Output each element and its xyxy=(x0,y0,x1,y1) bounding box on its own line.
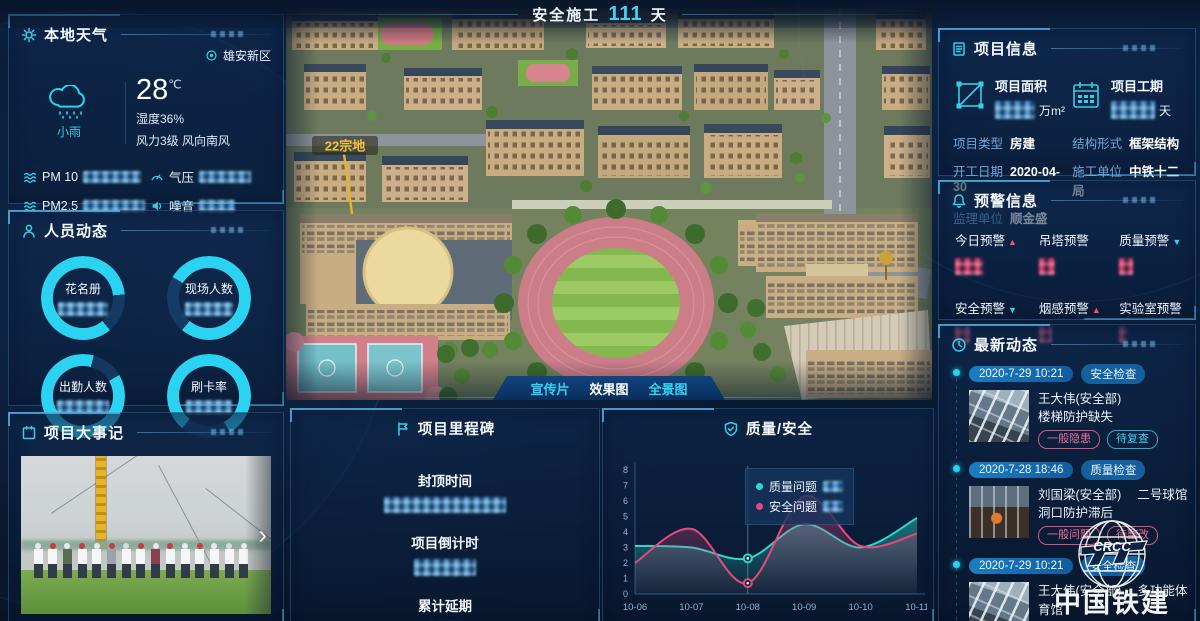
svg-text:3: 3 xyxy=(623,543,628,553)
milestone-title: 项目里程碑 xyxy=(418,418,496,439)
issue-text: 洞口防护滞后 xyxy=(1038,504,1187,522)
inspector-name: 刘国梁(安全部) xyxy=(1038,488,1121,502)
stat-unit: 万m² xyxy=(1039,102,1065,119)
header-line-right xyxy=(682,14,932,15)
temperature-unit: ℃ xyxy=(168,77,181,91)
events-panel: 项目大事记 › xyxy=(8,412,284,621)
calendar-note-icon xyxy=(21,425,37,441)
top-header: 安全施工 111 天 xyxy=(0,0,1200,28)
legend-dot-quality xyxy=(756,483,763,490)
metric-value-redacted xyxy=(83,171,141,183)
clock-icon xyxy=(951,337,967,353)
weather-main: 小雨 28℃ 湿度36% 风力3级 风向南风 xyxy=(23,76,271,149)
safety-days-title: 安全施工 111 天 xyxy=(532,3,668,26)
dashboard: 安全施工 111 天 xyxy=(0,0,1200,621)
inspector-name: 王大伟(安全部) xyxy=(1038,392,1121,406)
stat-label: 项目工期 xyxy=(1111,76,1171,95)
feed-photo[interactable] xyxy=(969,486,1029,538)
tabbar-line-right xyxy=(722,397,872,398)
carousel-next-arrow[interactable]: › xyxy=(258,520,267,551)
gear-icon xyxy=(21,27,37,43)
view-tabs: 宣传片 效果图 全景图 xyxy=(493,376,725,400)
svg-text:10-09: 10-09 xyxy=(792,602,816,613)
metric-pm10: PM 10 xyxy=(23,167,146,186)
warning-crane: 吊塔预警 xyxy=(1039,230,1113,276)
ring-value-redacted xyxy=(185,302,233,316)
feed-item[interactable]: 2020-7-29 10:21 安全检查 王大伟(安全部)多功能体育馆 楼梯防护… xyxy=(953,556,1189,621)
feed-date: 2020-7-29 10:21 xyxy=(969,366,1073,382)
air-metrics: PM 10 气压 PM2.5 噪音 xyxy=(23,167,273,215)
tooltip-value-redacted xyxy=(823,481,843,492)
stat-unit: 天 xyxy=(1159,102,1171,119)
quality-safety-chart: 01234567810-0610-0710-0810-0910-1010-11 … xyxy=(603,446,933,621)
event-photo[interactable]: › xyxy=(21,456,271,614)
header-rule xyxy=(121,34,271,35)
haze-icon xyxy=(23,170,37,184)
personnel-panel: 人员动态 花名册 现场人数 出勤人数 刷卡率 xyxy=(8,210,284,406)
location-row: 雄安新区 xyxy=(205,47,271,64)
field-type: 项目类型房建 xyxy=(953,133,1068,152)
rain-cloud-icon xyxy=(46,85,92,119)
quality-safety-panel: 质量/安全 01234567810-0610-0710-0810-0910-10… xyxy=(602,408,934,621)
header-rule xyxy=(1051,48,1183,49)
safety-title-text: 安全施工 xyxy=(532,7,600,24)
ring-roster: 花名册 xyxy=(41,256,125,340)
stat-duration: 项目工期 天 xyxy=(1069,76,1185,119)
group-of-people xyxy=(34,543,249,578)
inspector-name: 王大伟(安全部) xyxy=(1038,584,1121,598)
latest-updates-panel: 最新动态 2020-7-29 10:21 安全检查 王大伟(安全部) 楼梯防护缺… xyxy=(938,324,1196,621)
feed-category: 安全检查 xyxy=(1081,364,1145,384)
humidity: 湿度36% xyxy=(136,110,271,127)
tooltip-value-redacted xyxy=(823,501,843,512)
calendar-icon xyxy=(1069,78,1103,112)
location-pin-icon xyxy=(205,49,218,62)
warning-today: 今日预警▲ xyxy=(955,230,1033,276)
trend-up-icon: ▲ xyxy=(1092,305,1101,315)
ring-label: 现场人数 xyxy=(185,280,233,297)
header-line-left xyxy=(268,14,518,15)
feed-category: 安全检查 xyxy=(1081,556,1145,576)
warning-value-redacted xyxy=(1119,258,1133,275)
ring-onsite: 现场人数 xyxy=(167,256,251,340)
project-stats: 项目面积 万m² 项目工期 天 xyxy=(953,76,1185,119)
latest-updates-title: 最新动态 xyxy=(974,334,1038,355)
svg-text:10-07: 10-07 xyxy=(679,602,703,613)
person-icon xyxy=(21,223,37,239)
warnings-panel: 预警信息 今日预警▲ 吊塔预警 质量预警▼ 安全预警▼ 烟感预警▲ xyxy=(938,180,1196,320)
safety-days-value: 111 xyxy=(608,3,642,25)
warning-quality: 质量预警▼ xyxy=(1119,230,1187,276)
metric-label: 气压 xyxy=(169,167,194,186)
chart-title: 质量/安全 xyxy=(746,418,813,439)
warning-value-redacted xyxy=(955,258,983,275)
warnings-title: 预警信息 xyxy=(974,190,1038,211)
wind: 风力3级 风向南风 xyxy=(136,132,271,149)
hazard-tag: 一般问题 xyxy=(1038,526,1100,545)
personnel-rings: 花名册 现场人数 出勤人数 刷卡率 xyxy=(9,256,283,438)
temperature: 28℃ xyxy=(136,76,271,105)
status-tag: 待整改 xyxy=(1107,526,1158,545)
project-info-title: 项目信息 xyxy=(974,38,1038,59)
svg-text:2: 2 xyxy=(623,558,628,568)
ring-label: 花名册 xyxy=(65,280,101,297)
svg-text:1: 1 xyxy=(623,574,628,584)
ring-label: 刷卡率 xyxy=(191,378,227,395)
flag-icon xyxy=(395,421,411,437)
svg-text:10-11: 10-11 xyxy=(905,602,927,613)
weather-condition: 小雨 xyxy=(57,123,81,140)
status-tag: 待复查 xyxy=(1107,430,1158,449)
legend-dot-safety xyxy=(756,503,763,510)
updates-feed: 2020-7-29 10:21 安全检查 王大伟(安全部) 楼梯防护缺失 一般隐… xyxy=(953,364,1189,621)
location-label: 雄安新区 xyxy=(223,47,271,64)
header-rule xyxy=(121,230,271,231)
trend-down-icon: ▼ xyxy=(1008,305,1017,315)
feed-date: 2020-7-29 10:21 xyxy=(969,558,1073,574)
hazard-tag: 一般隐患 xyxy=(1038,430,1100,449)
milestone-label: 项目倒计时 xyxy=(411,532,479,552)
legend-label-safety: 安全问题 xyxy=(769,498,817,515)
feed-item[interactable]: 2020-7-29 10:21 安全检查 王大伟(安全部) 楼梯防护缺失 一般隐… xyxy=(953,364,1189,460)
feed-item[interactable]: 2020-7-28 18:46 质量检查 刘国梁(安全部)二号球馆 洞口防护滞后… xyxy=(953,460,1189,556)
svg-text:10-08: 10-08 xyxy=(736,602,760,613)
trend-up-icon: ▲ xyxy=(1008,237,1017,247)
feed-photo[interactable] xyxy=(969,390,1029,442)
svg-text:8: 8 xyxy=(623,465,628,475)
plot-label: 22宗地 xyxy=(325,139,365,154)
milestone-panel: 项目里程碑 封顶时间 项目倒计时 累计延期 xyxy=(290,408,600,621)
site-render: 22宗地 xyxy=(286,8,932,400)
metric-pressure: 气压 xyxy=(150,167,273,186)
feed-location: 二号球馆 xyxy=(1137,488,1187,502)
stat-value-redacted xyxy=(1111,101,1155,119)
svg-text:6: 6 xyxy=(623,496,628,506)
warning-value-redacted xyxy=(1039,258,1055,275)
issue-text: 楼梯防护缺失 xyxy=(1038,408,1158,426)
svg-text:5: 5 xyxy=(623,512,628,522)
bell-icon xyxy=(951,193,967,209)
chart-tooltip: 质量问题 安全问题 xyxy=(745,468,854,525)
milestone-label: 封顶时间 xyxy=(418,470,472,490)
area-icon xyxy=(953,78,987,112)
milestone-label: 累计延期 xyxy=(418,595,472,615)
milestone-list: 封顶时间 项目倒计时 累计延期 xyxy=(291,458,599,621)
personnel-title: 人员动态 xyxy=(44,220,108,241)
svg-text:4: 4 xyxy=(623,527,628,537)
project-info-panel: 项目信息 项目面积 万m² xyxy=(938,28,1196,176)
tabbar-line-left xyxy=(346,397,496,398)
feed-photo[interactable] xyxy=(969,582,1029,621)
stat-label: 项目面积 xyxy=(995,76,1065,95)
svg-text:0: 0 xyxy=(623,589,628,599)
field-structure: 结构形式框架结构 xyxy=(1072,133,1185,152)
milestone-value-redacted xyxy=(384,497,506,513)
site-3d-view[interactable]: 22宗地 宣传片 效果图 全景图 xyxy=(286,8,932,400)
tab-render-view[interactable]: 效果图 xyxy=(589,379,628,398)
feed-date: 2020-7-28 18:46 xyxy=(969,462,1073,478)
metric-label: PM 10 xyxy=(42,170,78,184)
tab-promo-video[interactable]: 宣传片 xyxy=(530,379,569,398)
legend-label-quality: 质量问题 xyxy=(769,478,817,495)
events-title: 项目大事记 xyxy=(44,422,124,443)
svg-text:10-06: 10-06 xyxy=(623,602,647,613)
ring-value-redacted xyxy=(58,302,108,316)
header-rule xyxy=(1051,344,1183,345)
trend-down-icon: ▼ xyxy=(1172,237,1181,247)
milestone-value-redacted xyxy=(414,559,476,576)
shield-check-icon xyxy=(723,421,739,437)
feed-category: 质量检查 xyxy=(1081,460,1145,480)
stat-area: 项目面积 万m² xyxy=(953,76,1069,119)
svg-text:10-10: 10-10 xyxy=(848,602,872,613)
divider xyxy=(125,82,126,144)
safety-days-unit: 天 xyxy=(651,7,668,24)
tower-crane xyxy=(96,456,106,548)
gauge-icon xyxy=(150,170,164,184)
ring-label: 出勤人数 xyxy=(59,378,107,395)
stat-value-redacted xyxy=(995,101,1035,119)
header-rule xyxy=(137,432,271,433)
weather-panel: 本地天气 雄安新区 小雨 xyxy=(8,14,284,204)
header-rule xyxy=(1051,200,1183,201)
metric-value-redacted xyxy=(199,171,251,183)
tab-panorama[interactable]: 全景图 xyxy=(649,379,688,398)
svg-text:7: 7 xyxy=(623,481,628,491)
document-icon xyxy=(951,41,967,57)
